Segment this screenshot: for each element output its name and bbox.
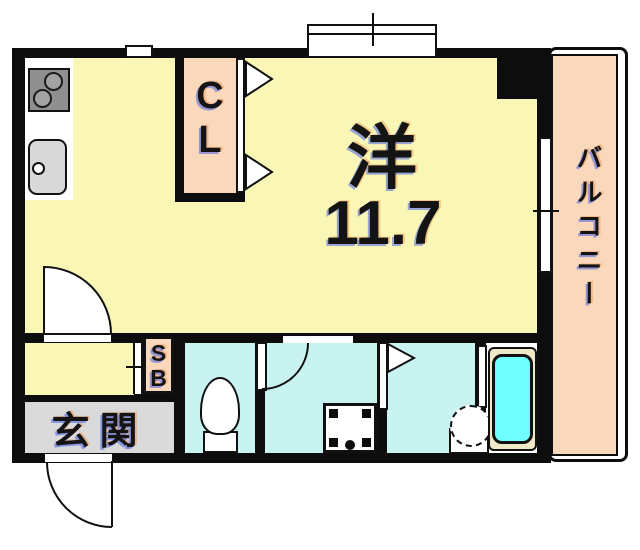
door-swing-overlay: [0, 0, 640, 550]
folding-door-icon: [388, 344, 414, 372]
balcony-label: バルコニー: [570, 144, 607, 364]
closet-folding-door-icon: [246, 155, 272, 189]
main-room-size: 11.7: [298, 188, 468, 259]
washroom-door-swing: [262, 343, 308, 389]
folding-door-track: [379, 343, 387, 409]
floor-plan: C L 玄関 S B: [0, 0, 640, 550]
interior-door-swing: [44, 267, 111, 334]
entrance-door-swing: [47, 462, 112, 527]
washroom-door-leaf: [257, 343, 266, 390]
closet-folding-door-icon: [246, 62, 272, 96]
